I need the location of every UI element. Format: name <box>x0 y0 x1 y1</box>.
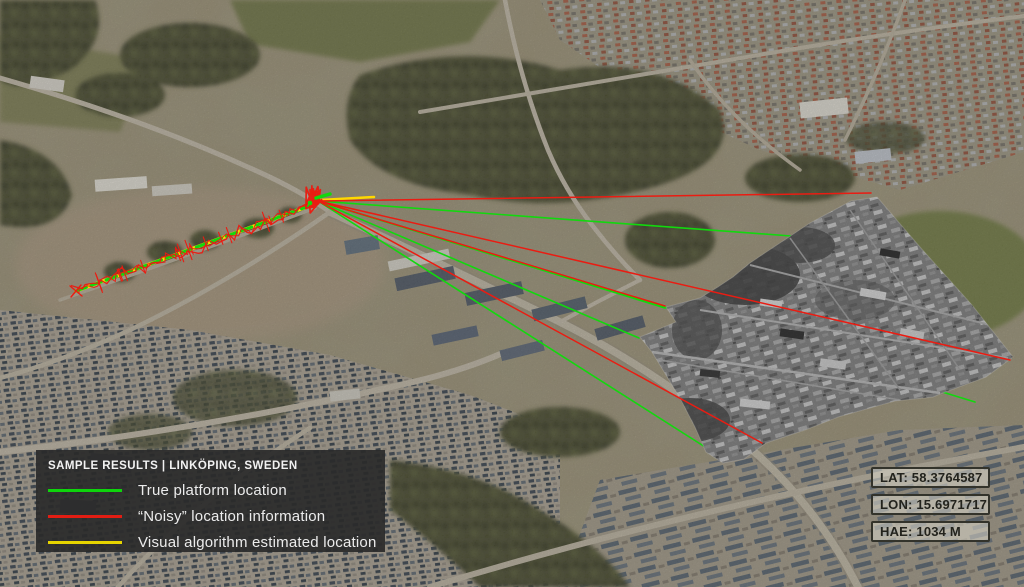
map-viewport[interactable]: SAMPLE RESULTS | LINKÖPING, SWEDEN True … <box>0 0 1024 587</box>
legend-label-true-platform: True platform location <box>138 482 287 499</box>
lat-readout: LAT: 58.3764587 <box>871 467 990 488</box>
convergence-true-dot <box>308 201 313 206</box>
legend-swatch-yellow-line <box>48 541 122 544</box>
legend-item-true-platform: True platform location <box>48 477 385 503</box>
legend-title: SAMPLE RESULTS | LINKÖPING, SWEDEN <box>48 460 385 472</box>
legend-panel: SAMPLE RESULTS | LINKÖPING, SWEDEN True … <box>36 450 385 552</box>
legend-item-visual-estimate: Visual algorithm estimated location <box>48 529 385 555</box>
legend-swatch-green-line <box>48 489 122 492</box>
lon-readout: LON: 15.6971717 <box>871 494 990 515</box>
hae-readout: HAE: 1034 M <box>871 521 990 542</box>
legend-label-visual-estimate: Visual algorithm estimated location <box>138 534 377 551</box>
telemetry-readout: LAT: 58.3764587 LON: 15.6971717 HAE: 103… <box>871 467 990 548</box>
legend-item-noisy-location: “Noisy” location information <box>48 503 385 529</box>
convergence-noise-dot <box>312 191 317 196</box>
legend-swatch-red-line <box>48 515 122 518</box>
legend-label-noisy-location: “Noisy” location information <box>138 508 325 525</box>
